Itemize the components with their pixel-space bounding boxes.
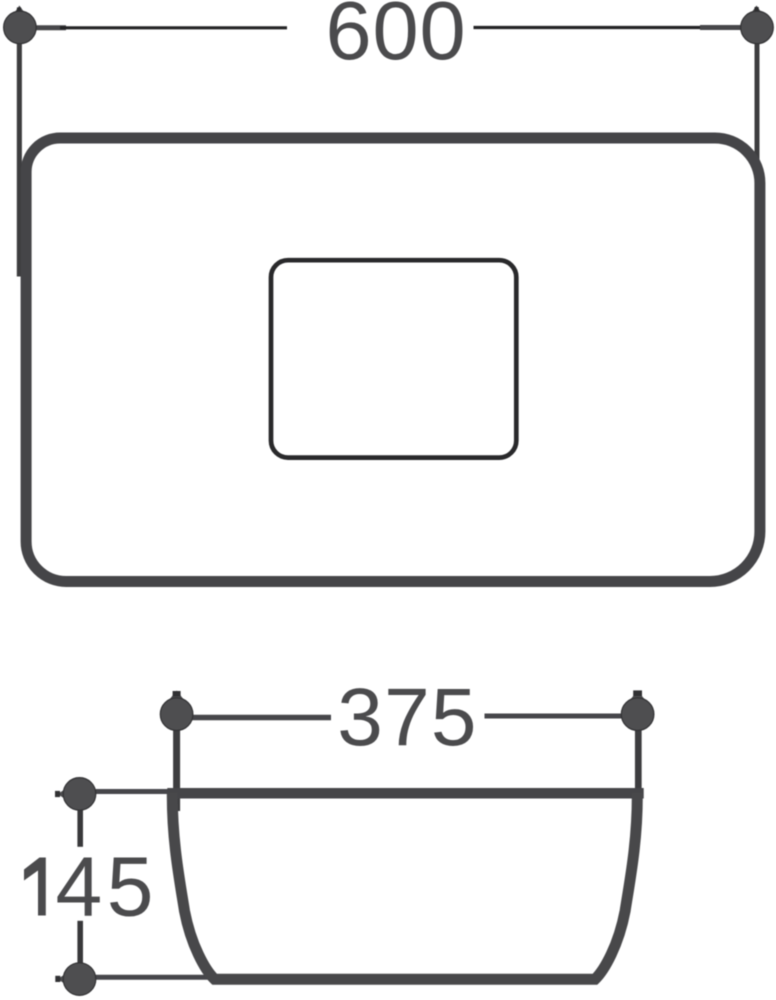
svg-text:45: 45 bbox=[56, 840, 158, 934]
svg-text:375: 375 bbox=[337, 672, 477, 763]
svg-text:600: 600 bbox=[326, 0, 467, 77]
